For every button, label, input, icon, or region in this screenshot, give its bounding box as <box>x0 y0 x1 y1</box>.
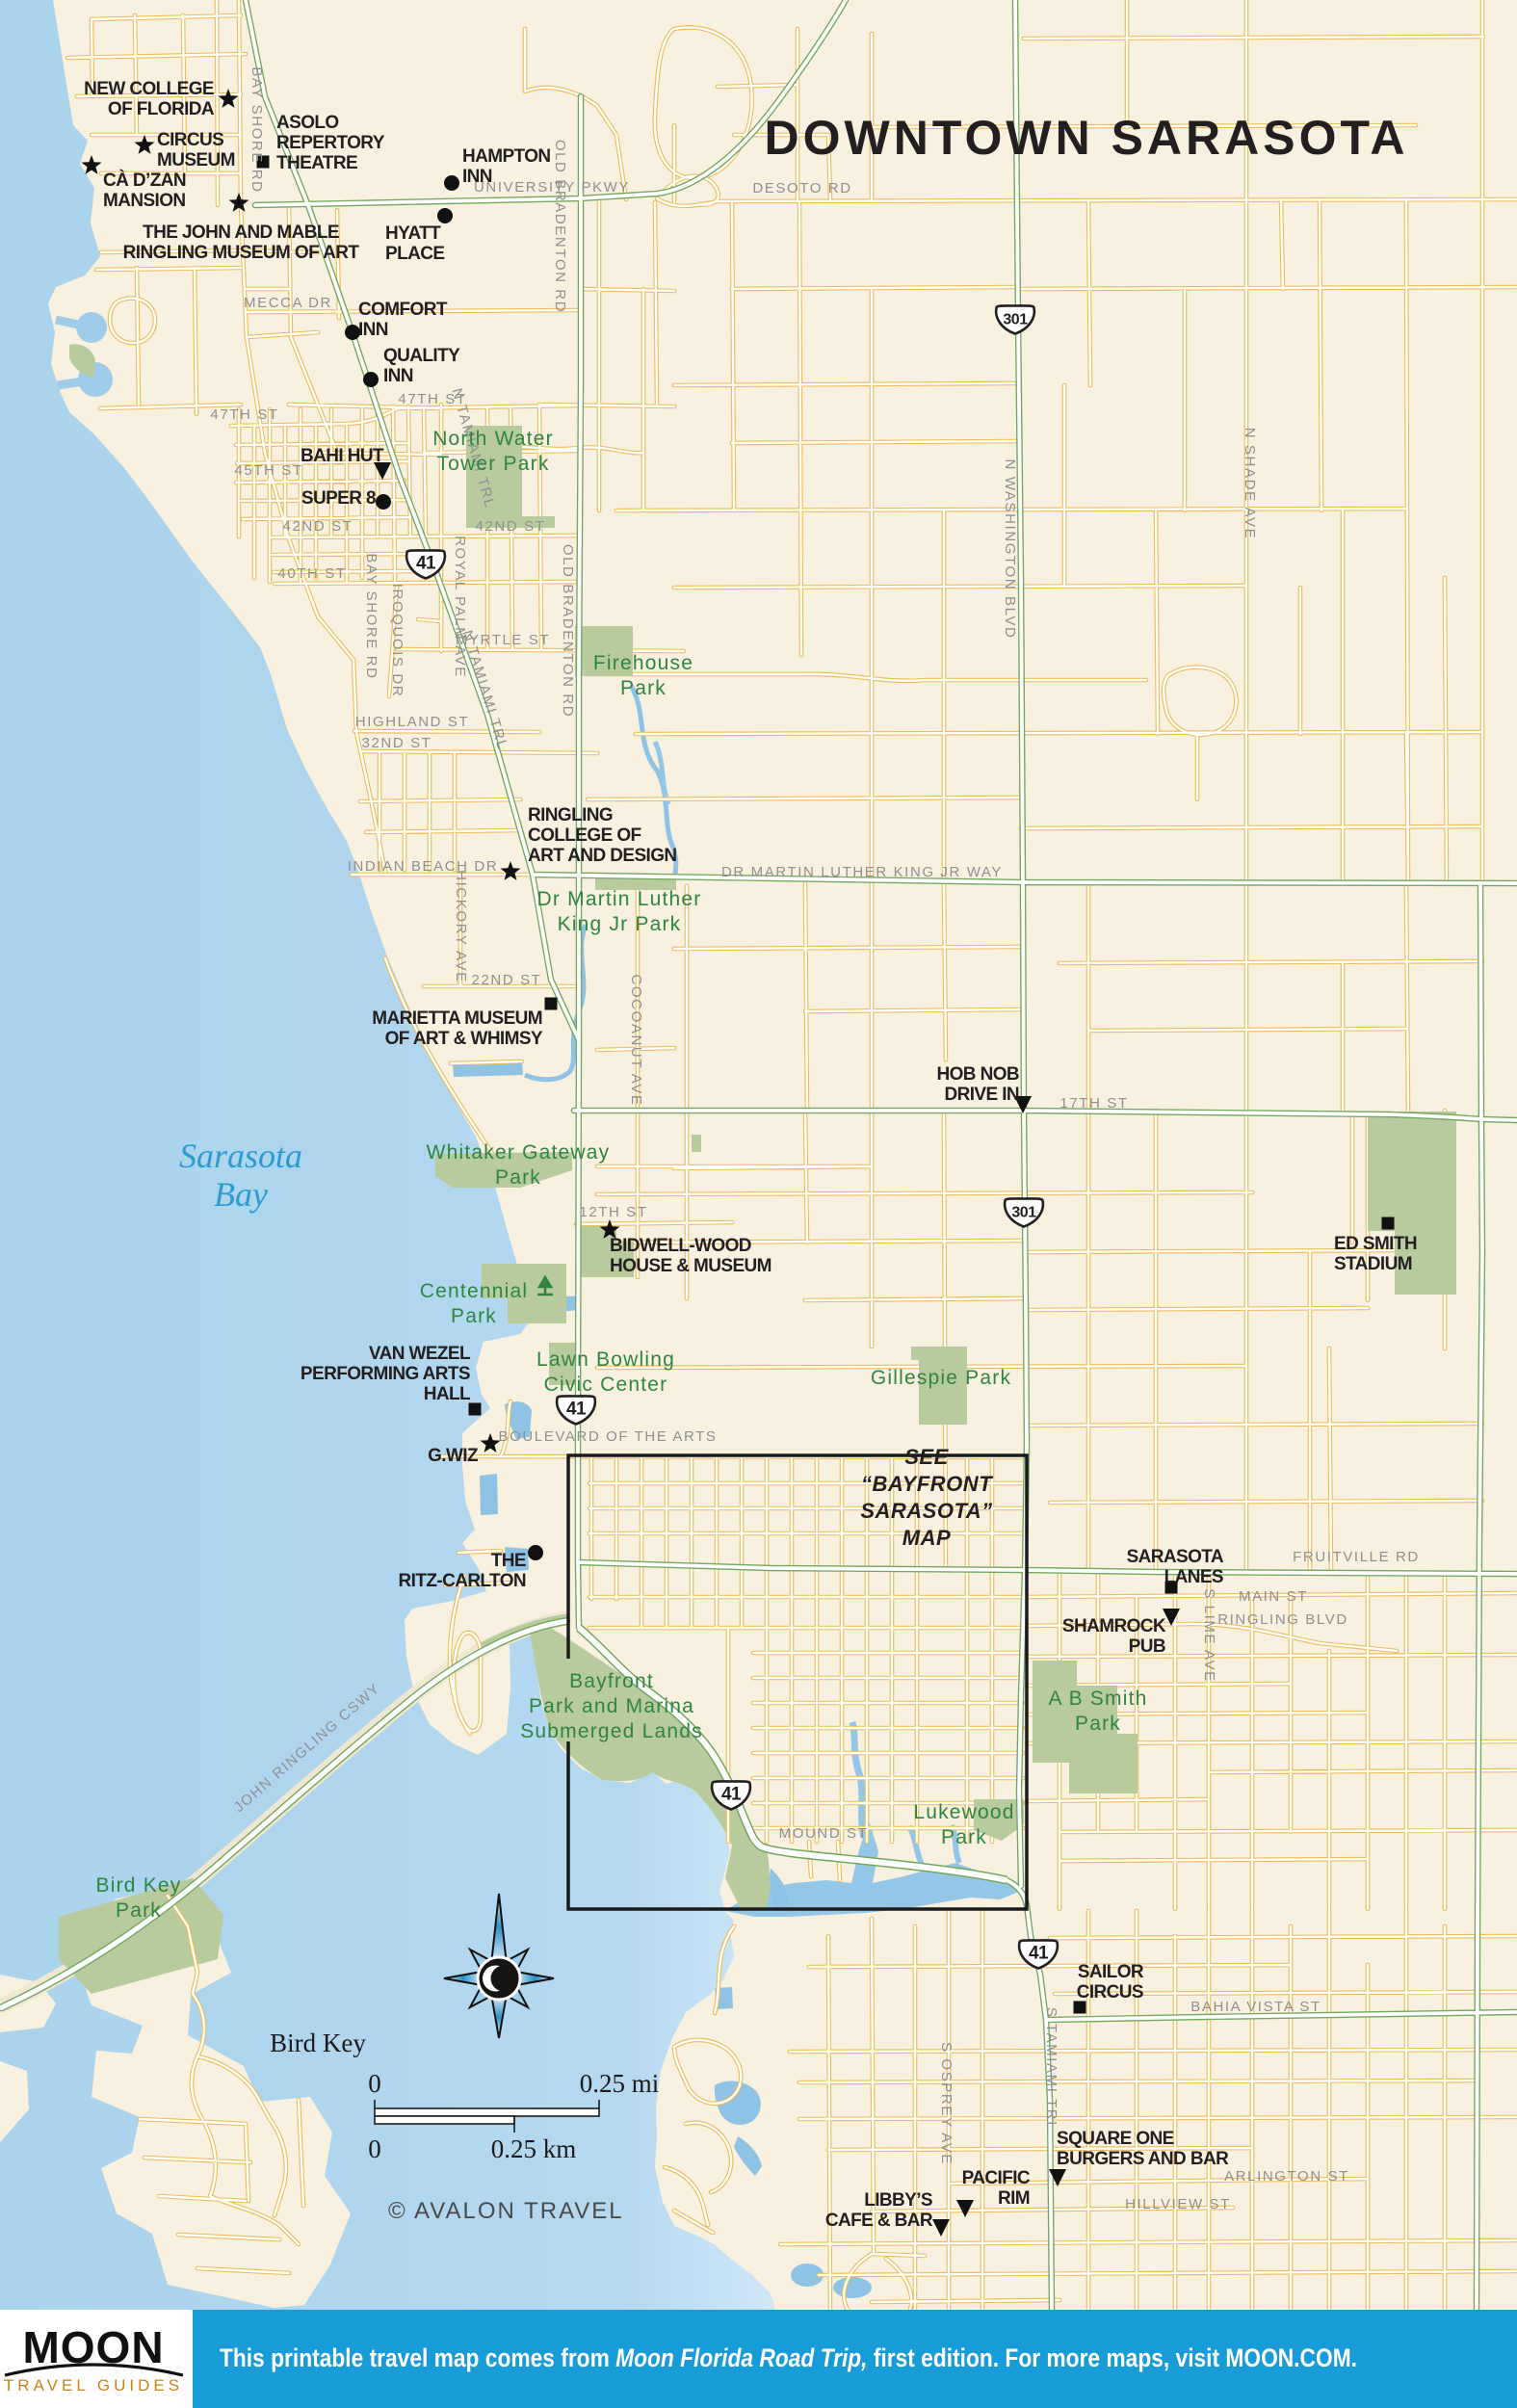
svg-text:N SHADE AVE: N SHADE AVE <box>1242 428 1258 540</box>
svg-text:Park: Park <box>451 1305 497 1327</box>
svg-text:COCOANUT AVE: COCOANUT AVE <box>628 974 644 1106</box>
svg-text:THE JOHN AND MABLE: THE JOHN AND MABLE <box>143 222 339 243</box>
svg-text:Park: Park <box>116 1899 162 1922</box>
svg-text:A B Smith: A B Smith <box>1048 1688 1147 1710</box>
svg-text:45TH ST: 45TH ST <box>234 462 302 479</box>
svg-text:FRUITVILLE RD: FRUITVILLE RD <box>1293 1549 1420 1565</box>
svg-text:IROQUOIS DR: IROQUOIS DR <box>389 584 405 697</box>
svg-text:CÀ D’ZAN: CÀ D’ZAN <box>103 170 186 191</box>
svg-text:Civic Center: Civic Center <box>544 1374 668 1396</box>
svg-text:HYATT: HYATT <box>385 223 441 244</box>
svg-text:ED SMITH: ED SMITH <box>1334 1234 1417 1254</box>
svg-text:HIGHLAND ST: HIGHLAND ST <box>355 714 469 730</box>
svg-text:BAHIA VISTA ST: BAHIA VISTA ST <box>1190 1999 1321 2015</box>
svg-text:PERFORMING ARTS: PERFORMING ARTS <box>301 1364 470 1384</box>
svg-text:BAY SHORE RD: BAY SHORE RD <box>248 66 265 193</box>
svg-text:SARASOTA”: SARASOTA” <box>860 1499 992 1523</box>
svg-text:HALL: HALL <box>424 1384 471 1404</box>
svg-text:Park: Park <box>941 1826 987 1848</box>
svg-text:THEATRE: THEATRE <box>276 153 357 173</box>
svg-text:Lukewood: Lukewood <box>913 1801 1014 1823</box>
svg-text:DR MARTIN LUTHER KING JR WAY: DR MARTIN LUTHER KING JR WAY <box>721 864 1003 880</box>
svg-text:REPERTORY: REPERTORY <box>276 133 385 153</box>
svg-text:Bird Key: Bird Key <box>96 1874 182 1897</box>
svg-text:Bay: Bay <box>214 1175 268 1214</box>
svg-text:Dr Martin Luther: Dr Martin Luther <box>537 888 702 910</box>
svg-text:Park and Marina: Park and Marina <box>529 1695 694 1717</box>
svg-text:40TH ST: 40TH ST <box>277 565 346 582</box>
svg-text:41: 41 <box>416 554 436 574</box>
svg-text:RIM: RIM <box>998 2188 1030 2209</box>
svg-text:LANES: LANES <box>1164 1567 1223 1587</box>
svg-text:ART AND DESIGN: ART AND DESIGN <box>528 846 677 866</box>
svg-text:INN: INN <box>462 167 492 187</box>
svg-text:41: 41 <box>1029 1944 1049 1964</box>
svg-text:42ND ST: 42ND ST <box>476 518 546 535</box>
svg-text:SHAMROCK: SHAMROCK <box>1062 1616 1166 1636</box>
svg-text:41: 41 <box>566 1400 587 1420</box>
svg-text:VAN WEZEL: VAN WEZEL <box>369 1344 471 1364</box>
svg-text:0.25 mi: 0.25 mi <box>580 2069 660 2098</box>
svg-text:DRIVE IN: DRIVE IN <box>944 1085 1019 1105</box>
svg-text:N WASHINGTON BLVD: N WASHINGTON BLVD <box>1002 459 1018 640</box>
svg-text:OLD BRADENTON RD: OLD BRADENTON RD <box>552 140 568 313</box>
svg-text:© AVALON TRAVEL: © AVALON TRAVEL <box>388 2198 624 2224</box>
svg-text:G.WIZ: G.WIZ <box>428 1446 479 1466</box>
svg-text:STADIUM: STADIUM <box>1334 1254 1412 1274</box>
svg-text:Park: Park <box>1075 1713 1121 1735</box>
svg-text:S TAMIAMI TRL: S TAMIAMI TRL <box>1043 2007 1059 2131</box>
svg-text:LIBBY’S: LIBBY’S <box>864 2190 932 2211</box>
svg-text:SQUARE ONE: SQUARE ONE <box>1057 2129 1174 2149</box>
svg-text:BURGERS AND BAR: BURGERS AND BAR <box>1057 2149 1229 2169</box>
svg-text:CIRCUS: CIRCUS <box>1077 1982 1143 2002</box>
svg-text:Centennial: Centennial <box>420 1280 528 1302</box>
svg-text:This printable travel map come: This printable travel map comes from Moo… <box>220 2343 1357 2372</box>
svg-text:OF FLORIDA: OF FLORIDA <box>108 99 215 119</box>
svg-text:HOB NOB: HOB NOB <box>936 1064 1019 1085</box>
svg-text:MOUND ST: MOUND ST <box>779 1825 869 1842</box>
svg-text:INDIAN BEACH DR: INDIAN BEACH DR <box>348 858 499 875</box>
svg-text:RINGLING: RINGLING <box>528 805 613 825</box>
svg-text:BIDWELL-WOOD: BIDWELL-WOOD <box>610 1236 751 1256</box>
svg-text:41: 41 <box>721 1785 742 1805</box>
svg-text:RINGLING BLVD: RINGLING BLVD <box>1217 1611 1348 1628</box>
svg-text:0: 0 <box>368 2134 381 2163</box>
svg-text:RITZ-CARLTON: RITZ-CARLTON <box>399 1571 526 1591</box>
svg-text:TRAVEL GUIDES: TRAVEL GUIDES <box>4 2376 183 2395</box>
svg-text:MAP: MAP <box>902 1526 951 1550</box>
svg-text:INN: INN <box>383 366 413 386</box>
svg-text:Firehouse: Firehouse <box>593 652 693 674</box>
svg-text:CAFE & BAR: CAFE & BAR <box>825 2211 933 2231</box>
svg-text:MANSION: MANSION <box>103 191 186 211</box>
svg-text:“BAYFRONT: “BAYFRONT <box>861 1472 993 1496</box>
svg-text:King Jr Park: King Jr Park <box>558 913 682 935</box>
svg-text:MECCA DR: MECCA DR <box>244 295 332 311</box>
svg-text:0.25 km: 0.25 km <box>491 2134 577 2163</box>
svg-text:PLACE: PLACE <box>385 244 444 264</box>
svg-text:HAMPTON: HAMPTON <box>462 146 551 167</box>
svg-text:HICKORY AVE: HICKORY AVE <box>453 870 469 983</box>
svg-text:MARIETTA MUSEUM: MARIETTA MUSEUM <box>372 1008 542 1029</box>
svg-text:COMFORT: COMFORT <box>358 300 448 320</box>
svg-text:Lawn Bowling: Lawn Bowling <box>536 1348 675 1371</box>
svg-text:ROYAL PALM AVE: ROYAL PALM AVE <box>452 536 468 678</box>
svg-text:THE: THE <box>491 1551 526 1571</box>
svg-text:SARASOTA: SARASOTA <box>1127 1547 1224 1567</box>
svg-text:301: 301 <box>1003 312 1028 328</box>
svg-text:RINGLING MUSEUM OF ART: RINGLING MUSEUM OF ART <box>123 243 360 263</box>
svg-text:DOWNTOWN SARASOTA: DOWNTOWN SARASOTA <box>765 111 1409 165</box>
svg-text:42ND ST: 42ND ST <box>283 518 353 535</box>
svg-text:DESOTO RD: DESOTO RD <box>752 180 851 196</box>
svg-text:BAHI HUT: BAHI HUT <box>301 446 384 466</box>
svg-text:17TH ST: 17TH ST <box>1059 1095 1128 1112</box>
svg-text:HILLVIEW ST: HILLVIEW ST <box>1125 2196 1231 2212</box>
svg-text:Submerged Lands: Submerged Lands <box>520 1720 703 1742</box>
svg-text:ASOLO: ASOLO <box>276 113 339 133</box>
svg-text:MAIN ST: MAIN ST <box>1239 1588 1308 1605</box>
svg-text:SEE: SEE <box>904 1445 949 1469</box>
svg-text:CIRCUS: CIRCUS <box>157 130 223 150</box>
svg-text:UNIVERSITY PKWY: UNIVERSITY PKWY <box>474 179 630 196</box>
svg-text:Park: Park <box>495 1166 541 1189</box>
svg-text:SAILOR: SAILOR <box>1078 1962 1144 1982</box>
svg-text:QUALITY: QUALITY <box>383 346 460 366</box>
svg-text:BOULEVARD OF THE ARTS: BOULEVARD OF THE ARTS <box>499 1428 718 1445</box>
svg-text:BAY SHORE RD: BAY SHORE RD <box>363 553 379 679</box>
svg-text:Tower Park: Tower Park <box>436 453 549 475</box>
svg-text:32ND ST: 32ND ST <box>362 735 432 751</box>
svg-text:COLLEGE OF: COLLEGE OF <box>528 825 641 846</box>
svg-text:Bayfront: Bayfront <box>569 1670 654 1692</box>
svg-text:Bird Key: Bird Key <box>270 2028 366 2057</box>
svg-text:S LIME AVE: S LIME AVE <box>1201 1588 1217 1682</box>
svg-text:OLD BRADENTON RD: OLD BRADENTON RD <box>560 544 576 718</box>
svg-text:INN: INN <box>358 320 388 340</box>
svg-text:Sarasota: Sarasota <box>179 1137 302 1175</box>
svg-text:NEW COLLEGE: NEW COLLEGE <box>84 79 214 99</box>
svg-text:12TH ST: 12TH ST <box>579 1204 647 1220</box>
svg-text:301: 301 <box>1011 1205 1036 1221</box>
svg-text:SUPER 8: SUPER 8 <box>301 488 376 509</box>
svg-text:S OSPREY AVE: S OSPREY AVE <box>938 2042 955 2165</box>
svg-text:47TH ST: 47TH ST <box>210 406 278 423</box>
svg-text:MUSEUM: MUSEUM <box>157 150 235 170</box>
svg-text:22ND ST: 22ND ST <box>472 972 542 988</box>
svg-text:0: 0 <box>368 2069 381 2098</box>
svg-text:OF ART & WHIMSY: OF ART & WHIMSY <box>385 1029 543 1049</box>
svg-text:Whitaker Gateway: Whitaker Gateway <box>427 1141 611 1164</box>
svg-text:PACIFIC: PACIFIC <box>962 2168 1031 2188</box>
svg-text:HOUSE & MUSEUM: HOUSE & MUSEUM <box>610 1256 772 1276</box>
svg-text:PUB: PUB <box>1129 1636 1165 1657</box>
svg-text:North Water: North Water <box>432 428 554 450</box>
svg-text:Park: Park <box>620 677 667 699</box>
svg-text:Gillespie Park: Gillespie Park <box>871 1367 1011 1389</box>
svg-text:ARLINGTON ST: ARLINGTON ST <box>1224 2168 1349 2185</box>
